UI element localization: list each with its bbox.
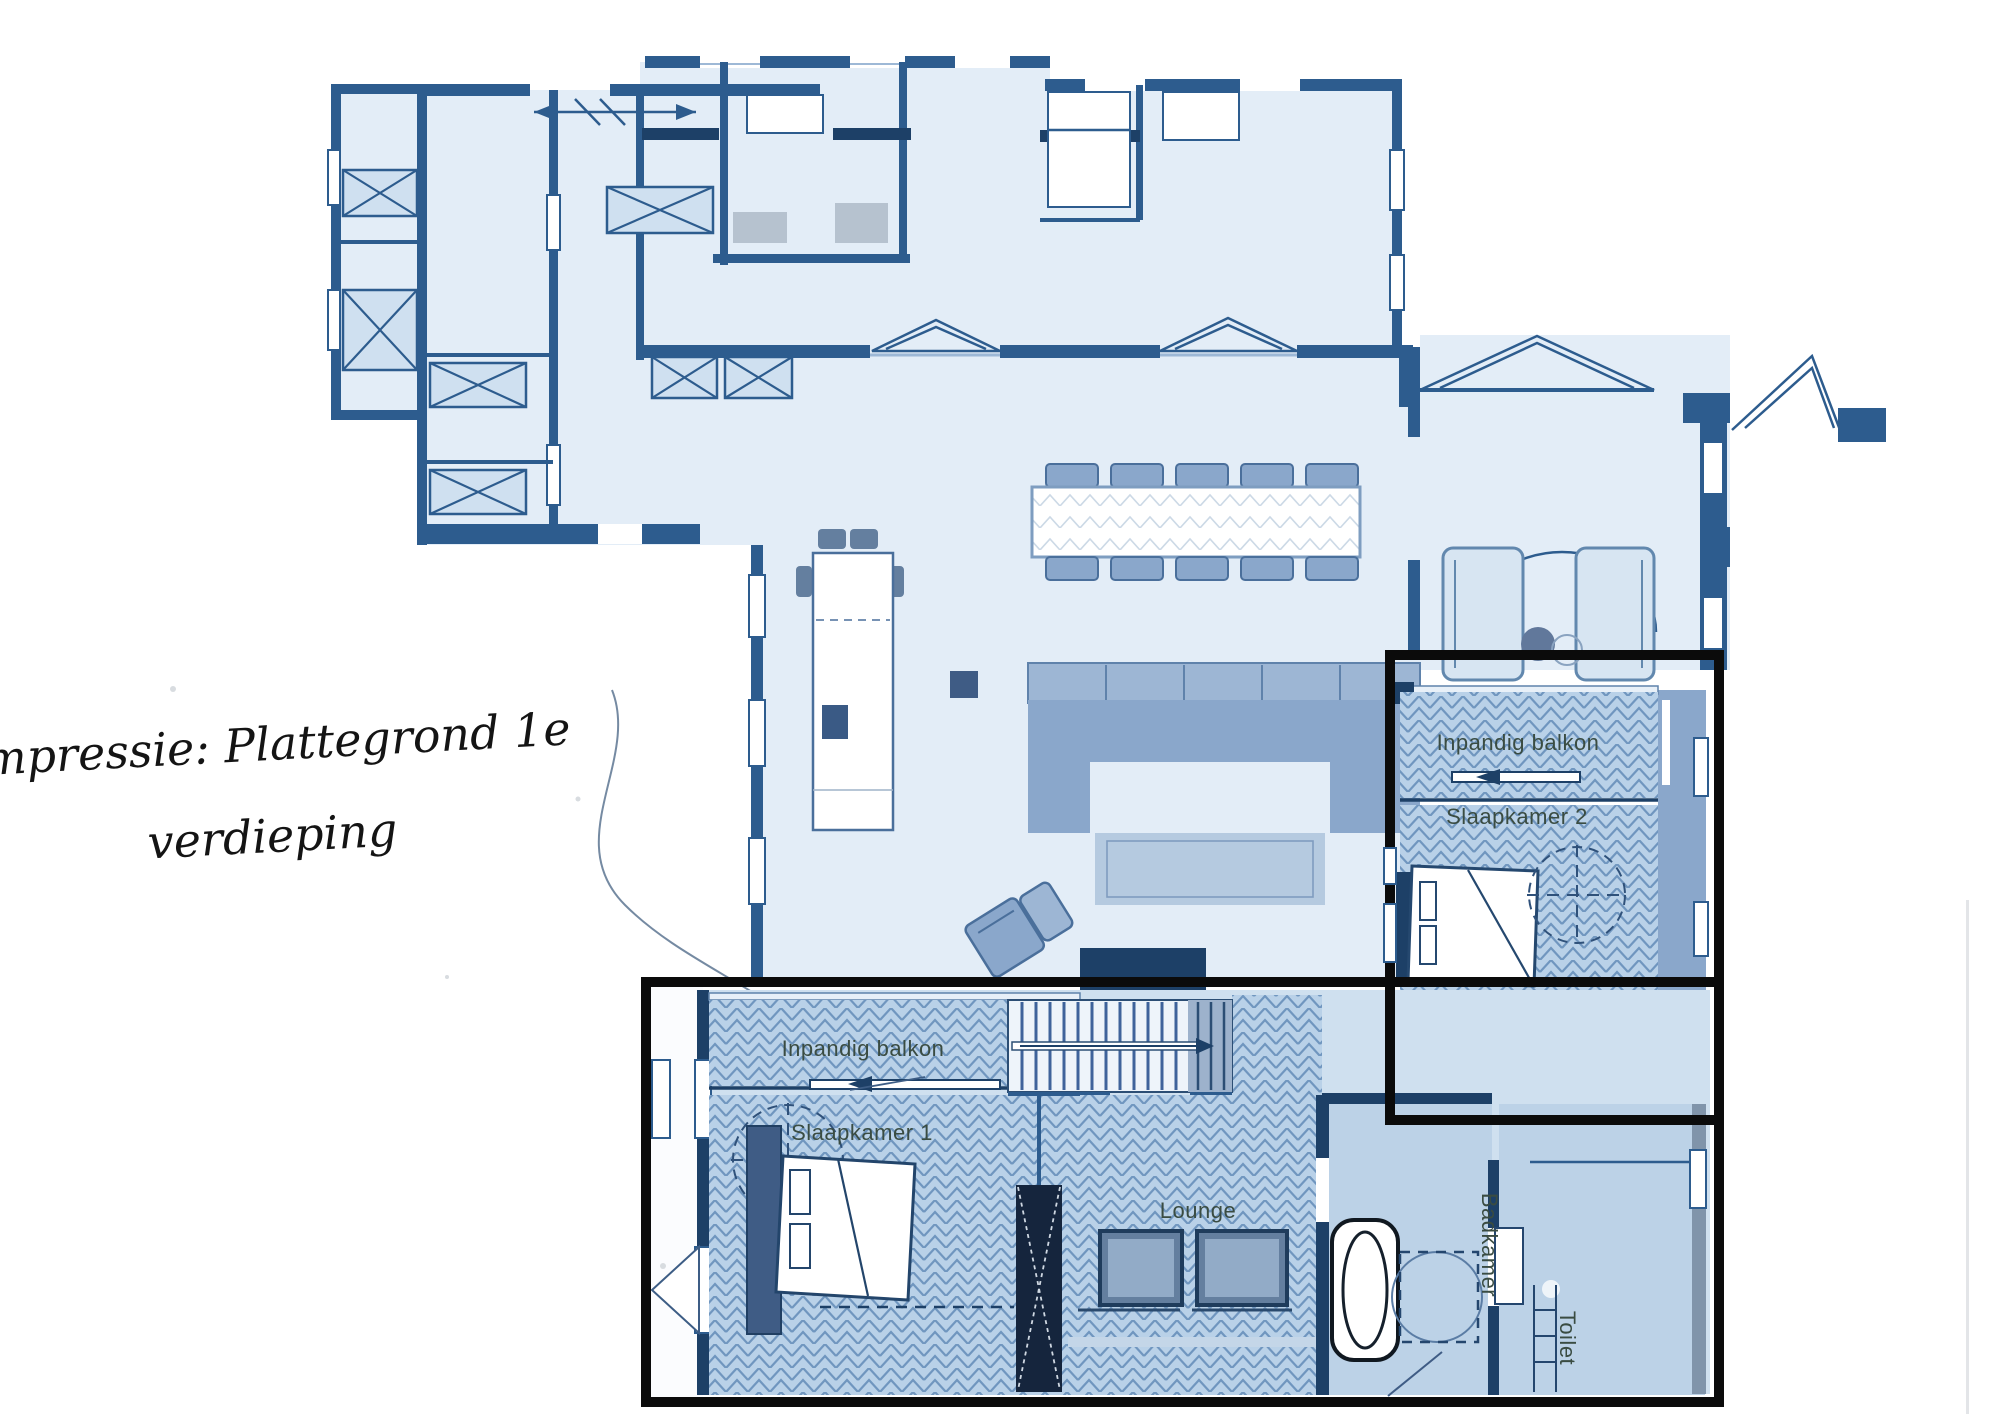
side-dormer <box>1732 356 1840 430</box>
scan-edge-line <box>1966 900 1969 1414</box>
room-label-toilet: Toilet <box>1555 1311 1580 1365</box>
slider-door <box>1452 772 1580 782</box>
dining-area <box>1032 464 1360 580</box>
room-label-bedroom1: Slaapkamer 1 <box>791 1120 933 1145</box>
room-label-lounge: Lounge <box>1160 1198 1236 1223</box>
floor-plan-svg: Inpandig balkon Slaapkamer 2 Inpandig ba… <box>0 0 2000 1414</box>
door-panel <box>1016 1185 1062 1392</box>
furniture-table <box>747 95 823 133</box>
title-line-1: Impressie: Plattegrond 1e <box>0 701 572 787</box>
handwritten-title: Impressie: Plattegrond 1e verdieping <box>0 701 577 879</box>
headboard-closet <box>747 1126 781 1334</box>
lounge-seat <box>1197 1231 1287 1305</box>
furniture-bed <box>1048 92 1130 207</box>
room-label-bedroom2: Slaapkamer 2 <box>1446 804 1588 829</box>
hall-left-wall <box>749 545 765 978</box>
sink <box>822 705 848 739</box>
kitchen-island <box>796 529 904 830</box>
title-line-2: verdieping <box>146 802 398 869</box>
scanned-floorplan-page: Inpandig balkon Slaapkamer 2 Inpandig ba… <box>0 0 2000 1414</box>
scan-speck <box>445 975 449 979</box>
rug <box>1095 833 1325 905</box>
scan-speck <box>170 686 176 692</box>
bathtub <box>1332 1220 1398 1360</box>
scan-speck <box>576 797 581 802</box>
scan-speck <box>660 1263 666 1269</box>
bed <box>1396 866 1538 986</box>
furniture-table <box>1163 92 1239 140</box>
side-table <box>950 671 978 698</box>
furniture-dresser <box>835 203 888 243</box>
sink <box>1542 1280 1560 1298</box>
furniture-dresser <box>733 212 787 243</box>
room-label-balcony-upper: Inpandig balkon <box>1437 730 1600 755</box>
stairs <box>1008 995 1322 1095</box>
room-label-balcony-lower: Inpandig balkon <box>782 1036 945 1061</box>
bed <box>776 1156 915 1300</box>
toilet-floor <box>1499 1104 1705 1395</box>
lounge-seat <box>1100 1231 1182 1305</box>
room-label-bathroom: Badkamer <box>1477 1193 1502 1297</box>
dining-table <box>1032 487 1360 557</box>
